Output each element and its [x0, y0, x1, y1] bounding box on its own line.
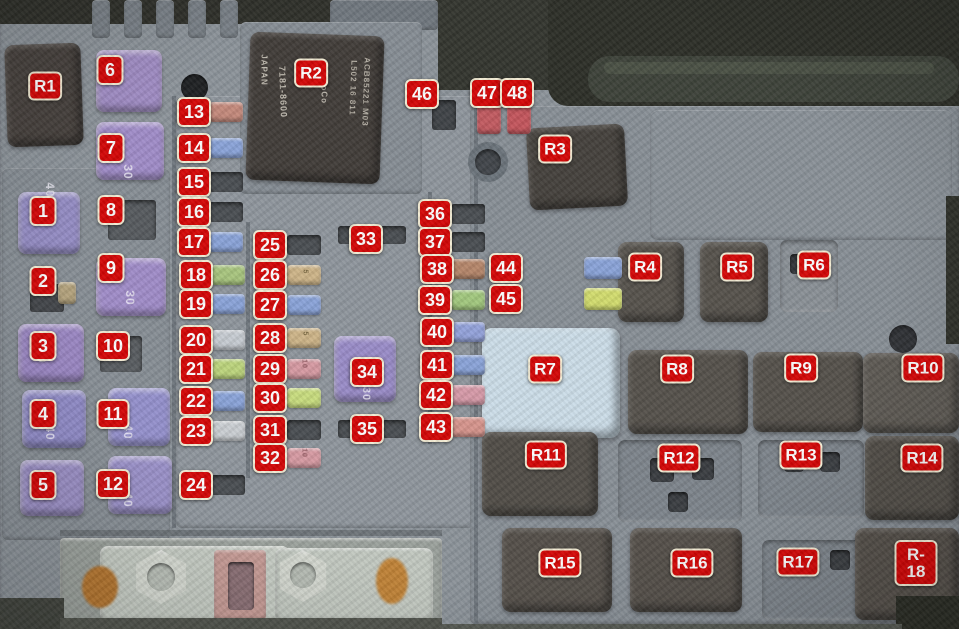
fuse-41-body: [451, 355, 485, 375]
fuse-callout-15: 15: [177, 167, 211, 197]
fuse-43-body: [451, 417, 485, 437]
fuse-31-slot: [287, 420, 321, 440]
fuse-callout-4: 4: [30, 399, 57, 429]
fuse-callout-17: 17: [177, 227, 211, 257]
fuse-callout-35: 35: [350, 414, 384, 444]
fuse-callout-40: 40: [420, 317, 454, 347]
relay-callout-R6: R6: [797, 251, 831, 280]
fuse-15-slot: [209, 172, 243, 192]
fuse-callout-7: 7: [98, 133, 125, 163]
wall-2: [246, 222, 250, 478]
bottom-strip: [60, 618, 442, 629]
fuse-callout-46: 46: [405, 79, 439, 109]
fuse-40-body: [451, 322, 485, 342]
relay-callout-R3: R3: [538, 135, 572, 164]
marking-text: L502 16 811: [348, 60, 359, 116]
top-left-fin-1: [92, 0, 110, 38]
marking-text: 5: [302, 270, 309, 275]
marking-text: 10: [301, 448, 308, 458]
fuse-16-slot: [209, 202, 243, 222]
fuse-callout-39: 39: [418, 285, 452, 315]
marking-text: 7181-8600: [277, 66, 289, 118]
fuse-callout-19: 19: [179, 289, 213, 319]
marking-text: 30: [121, 164, 135, 179]
fuse-27-body: [287, 295, 321, 315]
copper-fleck-1: [82, 566, 118, 608]
top-left-fin-5: [220, 0, 238, 38]
marking-text: 5: [302, 332, 309, 337]
fuse-callout-27: 27: [253, 290, 287, 320]
fuse-callout-29: 29: [253, 354, 287, 384]
fuse-38-body: [451, 259, 485, 279]
fuse-callout-8: 8: [98, 195, 125, 225]
marking-text: 30: [360, 387, 372, 401]
relay-callout-R11: R11: [525, 441, 567, 470]
relay-callout-R13: R13: [779, 441, 822, 470]
relay-callout-R12: R12: [657, 444, 700, 473]
fuse-callout-3: 3: [30, 331, 57, 361]
terminal-nut-2-cap: [290, 562, 316, 588]
fuse-39-body: [451, 290, 485, 310]
fuse-callout-16: 16: [177, 197, 211, 227]
fuse-callout-18: 18: [179, 260, 213, 290]
wall-1: [172, 96, 176, 528]
fuse-box-photo: JAPAN7181-8600FoMoCoL502 16 811ACB85221 …: [0, 0, 959, 629]
fuse-callout-33: 33: [349, 224, 383, 254]
fuse-36-slot: [451, 204, 485, 224]
hose-highlight: [604, 62, 934, 74]
fuse-14-body: [209, 138, 243, 158]
fuse-callout-43: 43: [419, 412, 453, 442]
relay-callout-R9: R9: [784, 354, 818, 383]
fuse-callout-10: 10: [96, 331, 130, 361]
fuse-callout-32: 32: [253, 443, 287, 473]
fuse-callout-26: 26: [253, 260, 287, 290]
fuse-26-body: [287, 265, 321, 285]
main-fuse-element-core: [228, 562, 254, 610]
fuse-21-body: [211, 359, 245, 379]
fuse-callout-14: 14: [177, 133, 211, 163]
fuse-13-body: [209, 102, 243, 122]
fuse-18-body: [211, 265, 245, 285]
fuse-20-body: [211, 330, 245, 350]
relay-callout-R10: R10: [901, 354, 944, 383]
top-left-fin-3: [156, 0, 174, 38]
fuse-19-body: [211, 294, 245, 314]
fuse-callout-38: 38: [420, 254, 454, 284]
relay-callout-R2: R2: [294, 59, 328, 88]
bottom-left-dark: [0, 598, 64, 629]
fuse-callout-23: 23: [179, 416, 213, 446]
relay-callout-R-18: R-18: [895, 540, 938, 586]
fuse-callout-24: 24: [179, 470, 213, 500]
fuse-44-body: [584, 257, 622, 279]
fuse-callout-48: 48: [500, 78, 534, 108]
relay-callout-R5: R5: [720, 253, 754, 282]
fuse-45-body: [584, 288, 622, 310]
marking-text: 10: [301, 359, 308, 369]
fuse-callout-25: 25: [253, 230, 287, 260]
relay-callout-R4: R4: [628, 253, 662, 282]
wall-5: [60, 530, 442, 536]
fuse-33-slot-b: [380, 226, 406, 244]
fuse-callout-22: 22: [179, 386, 213, 416]
washer-hole: [468, 142, 508, 182]
relay-r17-hole-2: [830, 550, 850, 570]
fuse-callout-20: 20: [179, 325, 213, 355]
fuse-2-tab: [58, 282, 76, 304]
fuse-callout-12: 12: [96, 469, 130, 499]
fuse-30-body: [287, 388, 321, 408]
copper-fleck-2: [376, 558, 408, 604]
relay-callout-R14: R14: [900, 444, 943, 473]
fuse-callout-36: 36: [418, 199, 452, 229]
relay-callout-R7: R7: [528, 355, 562, 384]
fuse-callout-34: 34: [350, 357, 384, 387]
fuse-callout-41: 41: [420, 350, 454, 380]
fuse-37-slot: [451, 232, 485, 252]
fuse-callout-21: 21: [179, 354, 213, 384]
fuse-callout-31: 31: [253, 415, 287, 445]
fuse-callout-42: 42: [419, 380, 453, 410]
relay-callout-R17: R17: [776, 548, 819, 577]
fuse-callout-44: 44: [489, 253, 523, 283]
relay-callout-R15: R15: [538, 549, 581, 578]
fuse-callout-45: 45: [489, 284, 523, 314]
engine-bay-top-mid: [438, 0, 560, 90]
fuse-22-body: [211, 391, 245, 411]
relay-r13-hole-2: [820, 452, 840, 472]
panel-hole-right: [889, 325, 917, 353]
relay-r12-hole-3: [668, 492, 688, 512]
terminal-nut-1-cap: [147, 563, 175, 591]
fuse-callout-30: 30: [253, 383, 287, 413]
fuse-callout-11: 11: [96, 399, 129, 429]
fuse-25-slot: [287, 235, 321, 255]
bottom-strip-right: [442, 624, 902, 629]
relay-callout-R1: R1: [28, 72, 62, 101]
top-left-fin-4: [188, 0, 206, 38]
fuse-callout-1: 1: [30, 196, 57, 226]
fuse-callout-6: 6: [97, 55, 124, 85]
fuse-callout-2: 2: [30, 266, 57, 296]
marking-text: 30: [123, 290, 137, 305]
relay-callout-R16: R16: [670, 549, 713, 578]
relay-cover-panel: [650, 110, 952, 240]
fuse-24-slot: [211, 475, 245, 495]
marking-text: JAPAN: [260, 54, 269, 86]
fuse-23-body: [211, 421, 245, 441]
fuse-17-body: [209, 232, 243, 252]
top-left-fin-2: [124, 0, 142, 38]
fuse-35-slot-b: [382, 420, 406, 438]
fuse-42-body: [451, 385, 485, 405]
relay-callout-R8: R8: [660, 355, 694, 384]
fuse-callout-13: 13: [177, 97, 211, 127]
fuse-callout-47: 47: [470, 78, 504, 108]
fuse-callout-37: 37: [418, 227, 452, 257]
fuse-callout-9: 9: [98, 253, 125, 283]
fuse-callout-28: 28: [253, 323, 287, 353]
right-edge-dark: [946, 196, 959, 344]
fuse-callout-5: 5: [30, 470, 57, 500]
bottom-right-dark: [896, 596, 959, 629]
